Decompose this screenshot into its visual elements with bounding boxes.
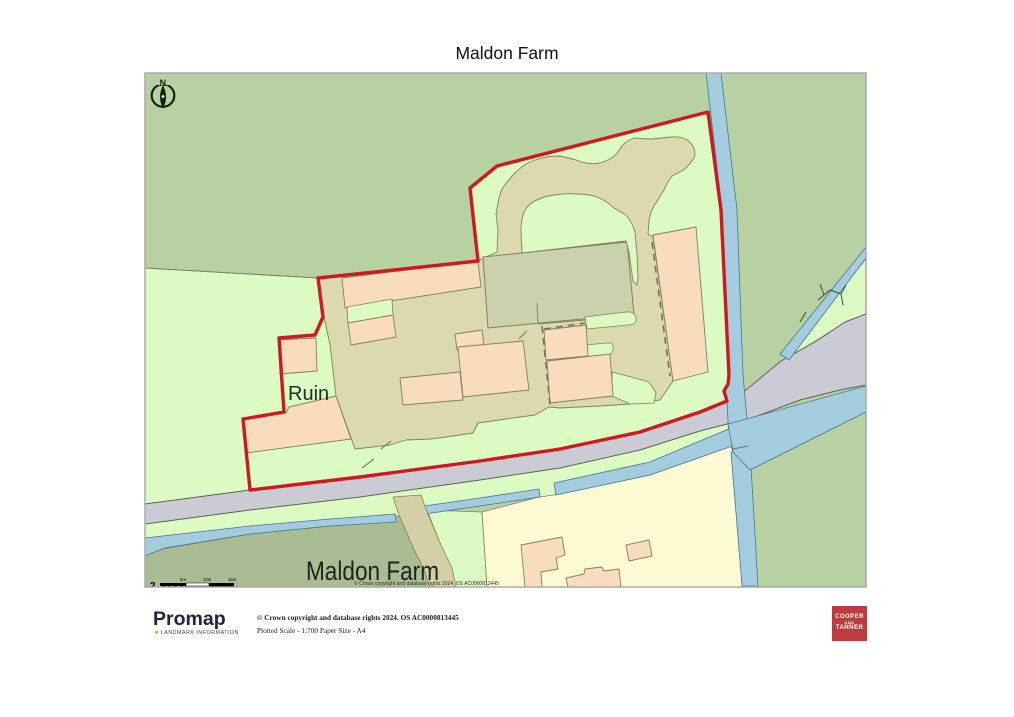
svg-text:5m: 5m: [180, 577, 186, 582]
svg-text:15m: 15m: [228, 577, 237, 582]
svg-text:© Crown copyright and database: © Crown copyright and database rights 20…: [354, 580, 499, 587]
svg-text:Ruin: Ruin: [288, 383, 329, 405]
svg-text:10m: 10m: [203, 577, 212, 582]
